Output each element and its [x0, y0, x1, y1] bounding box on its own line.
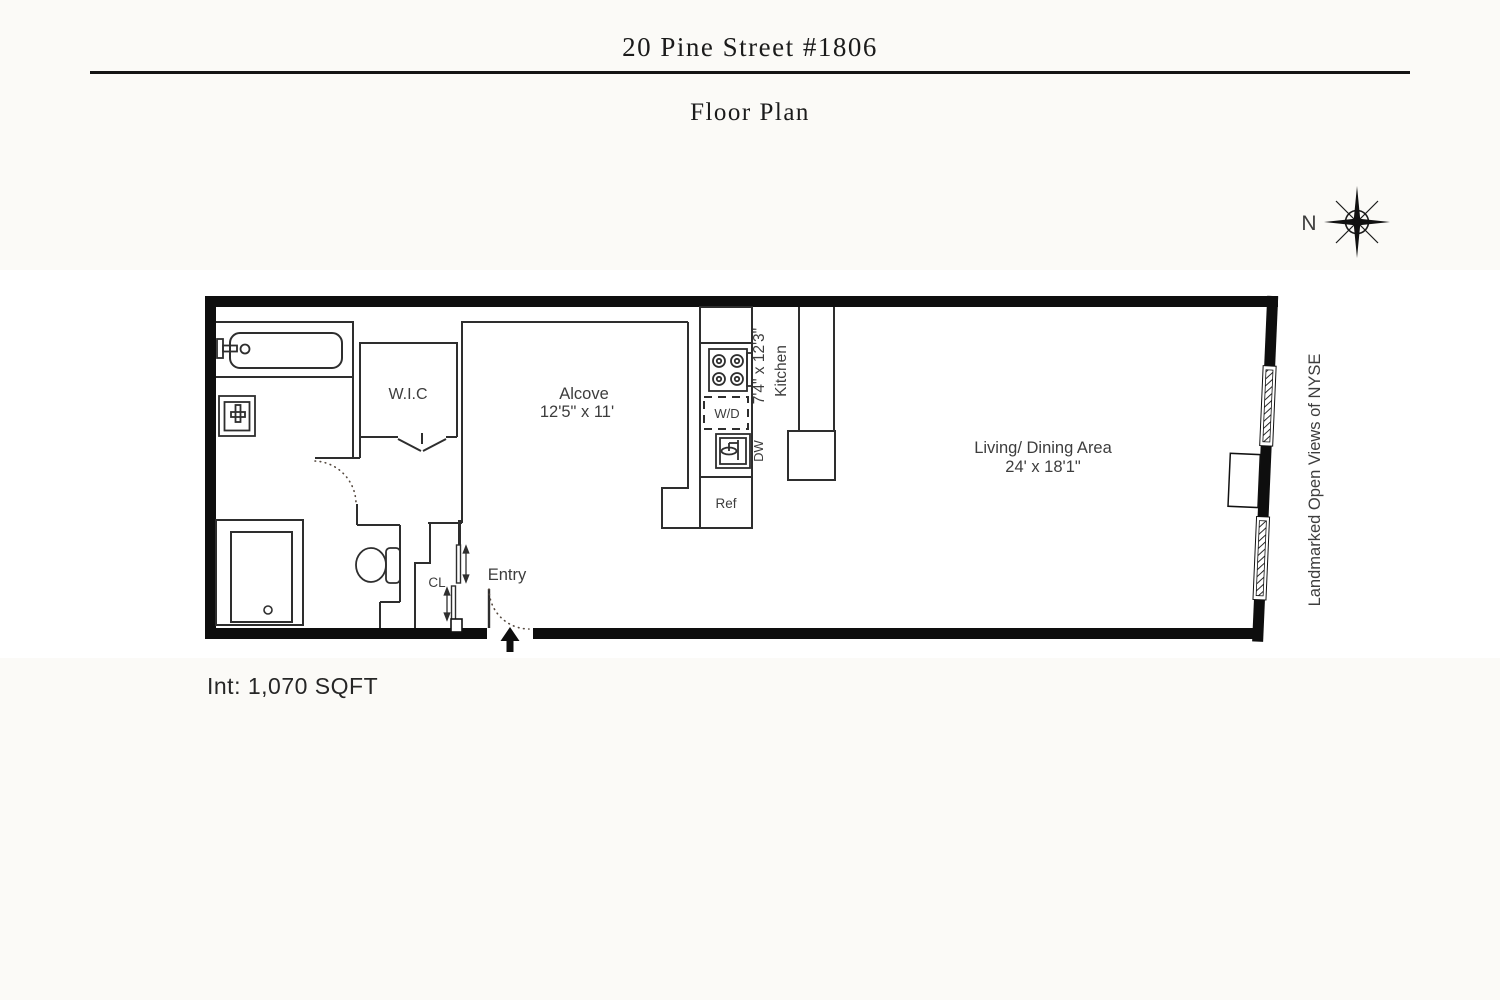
sliding-door-panel-lower	[452, 586, 456, 622]
bifold-door-icon	[398, 433, 446, 451]
washer-dryer-label: W/D	[714, 406, 739, 421]
tub-faucet-icon	[217, 339, 250, 358]
alcove-dims: 12'5" x 11'	[540, 403, 614, 421]
kitchen-label: Kitchen	[773, 345, 790, 397]
closet-door-jamb	[451, 619, 462, 632]
refrigerator-label: Ref	[715, 496, 736, 511]
dishwasher-label: DW	[751, 439, 766, 461]
living-dims: 24' x 18'1"	[1005, 458, 1081, 476]
wall-top	[205, 296, 1278, 307]
kitchen-counter-box	[788, 431, 835, 480]
interior-area-label: Int: 1,070 SQFT	[207, 673, 378, 700]
sliding-door-panel-upper	[457, 545, 461, 583]
entry-label: Entry	[488, 566, 527, 584]
alcove-walls	[462, 322, 700, 528]
wall-bottom-right	[533, 628, 1262, 639]
sink-icon	[219, 396, 255, 436]
floor-plan-page: { "header": { "title": "20 Pine Street #…	[0, 0, 1500, 1000]
kitchen-dims: 7'4" x 12'3"	[751, 328, 768, 404]
wall-bottom-left	[205, 628, 487, 639]
floor-plan-canvas: N	[0, 0, 1500, 1000]
wall-left	[205, 296, 216, 639]
bathtub-icon	[230, 333, 342, 368]
bathroom	[216, 322, 360, 525]
shower-icon	[216, 520, 303, 625]
alcove-label: Alcove	[559, 385, 609, 403]
shower-room	[216, 520, 303, 625]
shower-drain-icon	[264, 606, 272, 614]
compass-north-label: N	[1301, 212, 1316, 235]
window-view-note: Landmarked Open Views of NYSE	[1306, 354, 1324, 607]
wall-right-group	[1222, 294, 1279, 642]
dishwasher-icon	[716, 434, 750, 468]
kitchen-partition	[788, 307, 835, 480]
wall-unit-box	[1228, 453, 1260, 507]
toilet-room	[356, 525, 400, 628]
bathroom-door-swing-arc	[315, 461, 356, 504]
entry-arrow-icon	[501, 627, 520, 652]
compass-rose-icon	[1324, 186, 1390, 258]
toilet-icon	[356, 548, 400, 583]
stove-icon	[709, 349, 752, 391]
entry-door-swing-arc	[489, 589, 529, 629]
living-label: Living/ Dining Area	[974, 439, 1112, 457]
wic-label: W.I.C	[388, 386, 427, 403]
closet-label: CL	[428, 575, 446, 590]
